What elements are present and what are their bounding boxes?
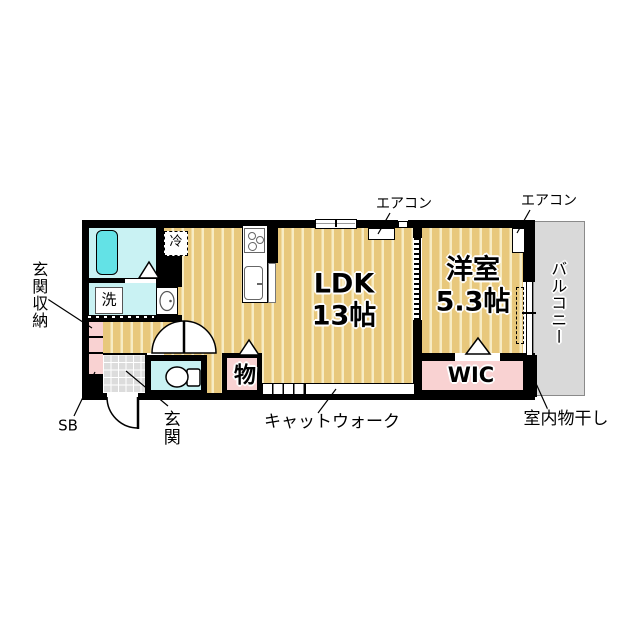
indoor-drying-pointer [524,357,548,410]
aircon-ldk-label: エアコン [376,196,432,212]
entrance-label: 玄関 [159,410,179,446]
wic-door-triangle [466,338,490,354]
entrance-storage-pointer [46,298,92,328]
toilet-tank [187,369,200,386]
floorplan-canvas: LDK 13帖 洋室 5.3帖 WIC 物 洗 冷 バルコニー エアコン エアコ… [0,0,640,640]
aircon-western-label: エアコン [521,193,577,209]
aircon-western-pointer [517,210,530,233]
washbasin-drain [169,300,172,303]
shoe-box-label: SB [58,417,78,434]
western-name: 洋室 [446,255,500,286]
ldk-name: LDK [314,269,375,300]
toilet-bowl [166,367,188,387]
catwalk-label: キャットウォーク [264,413,400,433]
entrance-pointer [126,371,168,406]
western-room-label: 洋室 5.3帖 [436,255,511,320]
ldk-size: 13帖 [312,301,377,332]
western-size: 5.3帖 [436,287,511,318]
laundry-label: 洗 [101,291,116,308]
storage-door-triangle [239,340,259,355]
balcony-label: バルコニー [548,261,566,346]
aircon-ldk-pointer [378,213,390,234]
fridge-label: 冷 [169,236,182,251]
ldk-label: LDK 13帖 [312,269,377,334]
bath-door-triangle [139,262,159,278]
wic-label: WIC [448,363,494,387]
entrance-door-arc [107,397,138,428]
shoe-box-pointer [74,372,95,416]
entrance-storage-label: 玄関収納 [29,261,47,329]
catwalk-pointer [318,389,336,413]
storage-label: 物 [234,363,256,388]
washbasin-bowl [160,292,174,311]
indoor-drying-label: 室内物干し [524,410,609,430]
